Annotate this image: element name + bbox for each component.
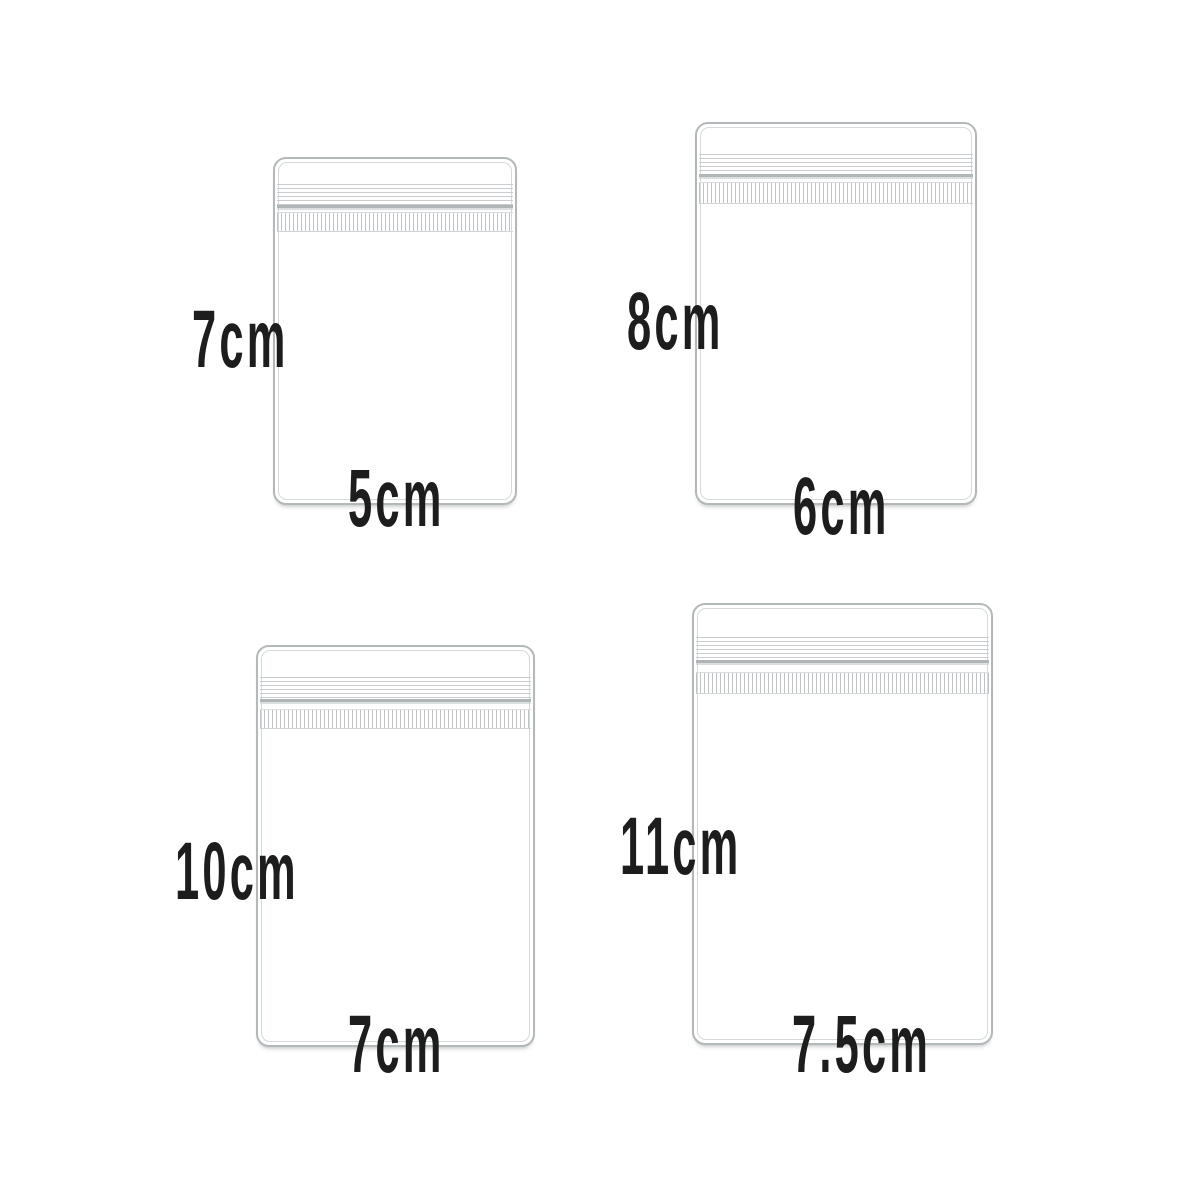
bag-zipper-ribs [277,212,513,232]
bag-zipper-ribs [699,182,973,204]
ziplock-bag-8x6 [695,122,977,505]
width-label-bag-10x7: 7cm [348,1004,445,1086]
height-label-bag-10x7: 10cm [175,831,299,913]
width-label-bag-8x6: 6cm [793,466,890,548]
bag-zipper-ribs [260,709,531,729]
size-diagram-canvas: 7cm 5cm 8cm 6cm 10cm 7cm 11cm 7.5cm [0,0,1200,1200]
width-label-bag-7x5: 5cm [348,458,445,540]
height-label-bag-7x5: 7cm [192,299,289,381]
height-label-bag-11x7_5: 11cm [620,806,741,888]
bag-seal-lines [277,184,513,208]
bag-seal-lines [260,677,531,702]
height-label-bag-8x6: 8cm [627,281,724,363]
width-label-bag-11x7_5: 7.5cm [792,1004,931,1086]
bag-zipper-ribs [696,672,989,694]
bag-seal-lines [696,637,989,663]
bag-seal-lines [699,154,973,177]
